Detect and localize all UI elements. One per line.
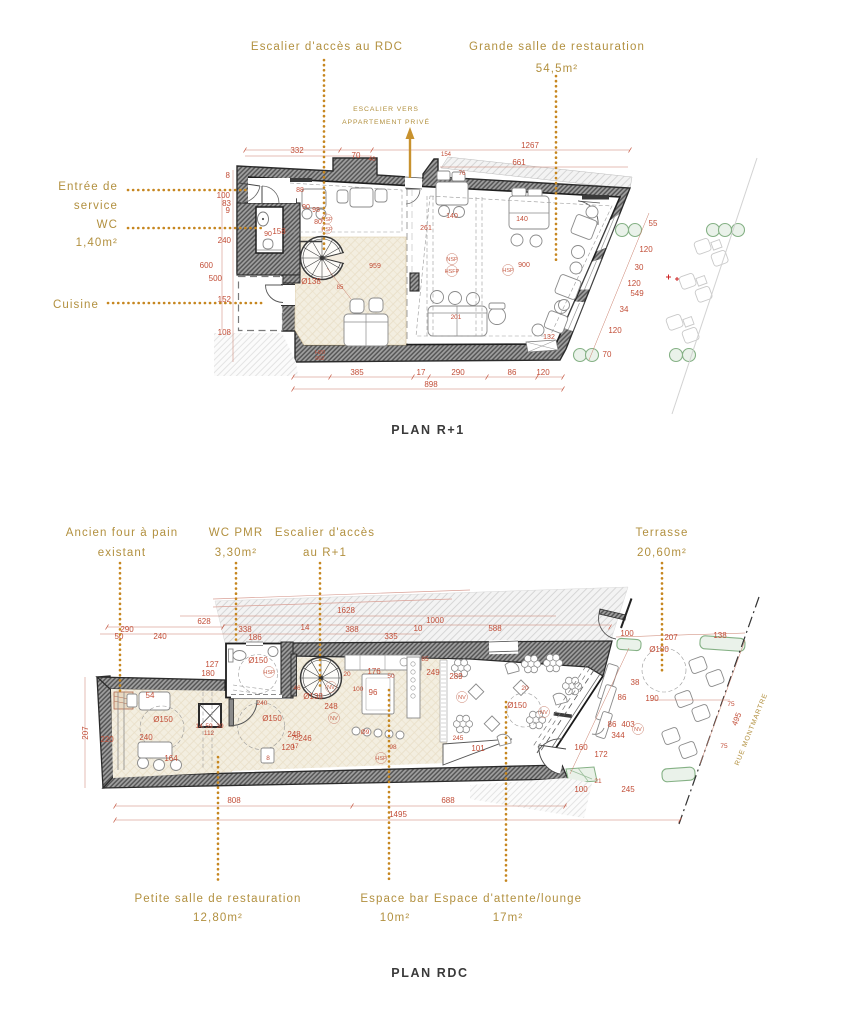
svg-text:Ø150: Ø150 [507,701,527,710]
svg-text:1267: 1267 [521,141,539,150]
svg-text:Ø150: Ø150 [248,656,268,665]
svg-text:NV: NV [330,716,338,722]
svg-text:220: 220 [100,735,114,744]
svg-text:Espace d'attente/lounge: Espace d'attente/lounge [434,893,582,905]
svg-text:85: 85 [421,656,429,663]
svg-text:245: 245 [453,735,464,742]
svg-text:APPARTEMENT PRIVÉ: APPARTEMENT PRIVÉ [342,117,430,126]
svg-text:Ø150: Ø150 [262,714,282,723]
svg-text:120: 120 [639,245,653,254]
svg-text:132: 132 [543,334,555,341]
svg-text:180: 180 [201,669,215,678]
svg-text:108: 108 [218,328,232,337]
svg-text:140: 140 [446,213,458,220]
svg-text:Ancien four à pain: Ancien four à pain [66,527,179,539]
svg-text:138: 138 [713,631,727,640]
svg-text:17m²: 17m² [493,912,524,924]
svg-text:112: 112 [204,730,215,737]
svg-text:176: 176 [367,667,381,676]
svg-text:120: 120 [536,368,550,377]
svg-text:90: 90 [302,204,310,211]
svg-text:Cuisine: Cuisine [53,299,99,311]
svg-text:154: 154 [441,152,452,158]
svg-text:240: 240 [218,236,232,245]
svg-text:344: 344 [611,731,625,740]
svg-text:HSP: HSP [263,670,275,676]
svg-text:248: 248 [324,702,338,711]
svg-text:127: 127 [205,660,219,669]
svg-text:900: 900 [518,262,530,269]
svg-text:55: 55 [649,219,658,228]
svg-text:17: 17 [417,368,426,377]
svg-text:HSP: HSP [375,756,387,762]
svg-text:85: 85 [337,285,344,291]
svg-text:500: 500 [209,274,223,283]
svg-text:21: 21 [594,778,602,785]
svg-text:46: 46 [293,685,301,692]
svg-text:Escalier d'accès au RDC: Escalier d'accès au RDC [251,41,403,53]
svg-text:20: 20 [521,685,529,692]
svg-text:17: 17 [291,743,299,750]
svg-text:588: 588 [488,624,502,633]
svg-text:388: 388 [345,625,359,634]
svg-text:54,5m²: 54,5m² [536,63,578,75]
svg-text:au R+1: au R+1 [303,547,347,559]
svg-text:207: 207 [81,726,90,740]
svg-text:100: 100 [574,785,588,794]
svg-text:12,80m²: 12,80m² [193,912,243,924]
svg-text:Ø150: Ø150 [153,715,173,724]
svg-text:Ø180: Ø180 [649,645,669,654]
svg-text:98: 98 [389,744,397,751]
svg-text:120: 120 [608,326,622,335]
svg-text:688: 688 [441,796,455,805]
svg-text:Ø138: Ø138 [303,692,323,701]
svg-text:140: 140 [516,216,528,223]
svg-text:160: 160 [574,743,588,752]
svg-text:75: 75 [727,701,735,708]
svg-text:service: service [74,200,118,212]
svg-text:Ø9: Ø9 [361,729,370,736]
svg-text:549: 549 [630,289,644,298]
svg-text:NV: NV [540,710,548,716]
svg-text:240: 240 [257,700,268,707]
svg-text:NSP: NSP [446,257,458,263]
svg-text:Petite salle de restauration: Petite salle de restauration [135,893,302,905]
svg-text:246: 246 [298,734,312,743]
svg-text:98: 98 [312,207,320,214]
svg-text:249: 249 [426,668,440,677]
svg-text:30: 30 [635,263,644,272]
svg-text:3,30m²: 3,30m² [215,547,257,559]
svg-text:86: 86 [508,368,517,377]
svg-text:14: 14 [301,623,310,632]
svg-text:808: 808 [227,796,241,805]
svg-text:8: 8 [266,755,270,762]
svg-text:50: 50 [387,673,395,680]
svg-text:HSFP: HSFP [445,269,460,275]
svg-text:164: 164 [164,754,178,763]
svg-text:9: 9 [226,206,231,215]
svg-text:100: 100 [353,686,364,693]
svg-text:959: 959 [369,263,381,270]
svg-text:290: 290 [451,368,465,377]
svg-text:38: 38 [631,678,640,687]
svg-text:Terrasse: Terrasse [636,527,689,539]
svg-text:240: 240 [153,632,167,641]
svg-text:002: 002 [315,356,324,362]
svg-text:70: 70 [352,151,361,160]
svg-text:NV: NV [327,685,335,691]
svg-text:207: 207 [664,633,678,642]
svg-text:1628: 1628 [337,606,355,615]
svg-text:59: 59 [205,723,213,730]
svg-text:600: 600 [200,261,214,270]
svg-text:Entrée de: Entrée de [58,181,118,193]
svg-text:existant: existant [98,547,146,559]
svg-text:90: 90 [264,231,272,238]
svg-text:240: 240 [139,733,153,742]
svg-text:40: 40 [368,156,376,163]
svg-text:54: 54 [146,691,155,700]
svg-text:86: 86 [608,720,617,729]
svg-text:332: 332 [290,146,304,155]
svg-text:76: 76 [459,171,466,177]
svg-text:ESCALIER VERS: ESCALIER VERS [353,106,419,113]
svg-text:335: 335 [384,632,398,641]
svg-text:628: 628 [197,617,211,626]
svg-text:WC PMR: WC PMR [209,527,264,539]
svg-text:10m²: 10m² [380,912,411,924]
svg-text:WC: WC [97,219,118,231]
svg-text:158: 158 [272,227,286,236]
svg-text:10: 10 [414,624,423,633]
svg-text:385: 385 [350,368,364,377]
svg-text:70: 70 [603,350,612,359]
svg-text:172: 172 [594,750,608,759]
svg-text:Espace bar: Espace bar [360,893,429,905]
svg-text:Grande salle de restauration: Grande salle de restauration [469,41,645,53]
svg-text:HSP: HSP [502,268,514,274]
svg-text:1495: 1495 [389,810,407,819]
svg-text:8: 8 [226,171,231,180]
svg-text:1000: 1000 [426,616,444,625]
svg-text:96: 96 [369,688,378,697]
svg-text:661: 661 [512,158,526,167]
svg-text:245: 245 [621,785,635,794]
svg-text:101: 101 [471,744,485,753]
svg-text:PLAN RDC: PLAN RDC [391,966,468,980]
svg-text:1,40m²: 1,40m² [76,237,118,249]
svg-text:289: 289 [449,672,463,681]
svg-text:20,60m²: 20,60m² [637,547,687,559]
svg-text:86: 86 [618,693,627,702]
svg-text:Escalier d'accès: Escalier d'accès [275,527,375,539]
svg-text:88: 88 [296,187,304,194]
svg-text:NV: NV [634,727,642,733]
svg-text:PLAN R+1: PLAN R+1 [391,423,465,437]
svg-text:120: 120 [627,279,641,288]
svg-text:Ø138: Ø138 [301,277,321,286]
svg-text:39: 39 [216,723,224,730]
svg-text:898: 898 [424,380,438,389]
svg-text:NV: NV [458,695,466,701]
svg-text:186: 186 [248,633,262,642]
svg-text:14: 14 [195,723,203,730]
svg-text:20: 20 [343,671,351,678]
svg-text:100: 100 [620,629,634,638]
svg-text:201: 201 [451,314,462,321]
svg-text:75: 75 [720,743,728,750]
svg-text:261: 261 [420,225,432,232]
svg-text:190: 190 [645,694,659,703]
svg-text:34: 34 [620,305,629,314]
svg-text:403: 403 [621,720,635,729]
